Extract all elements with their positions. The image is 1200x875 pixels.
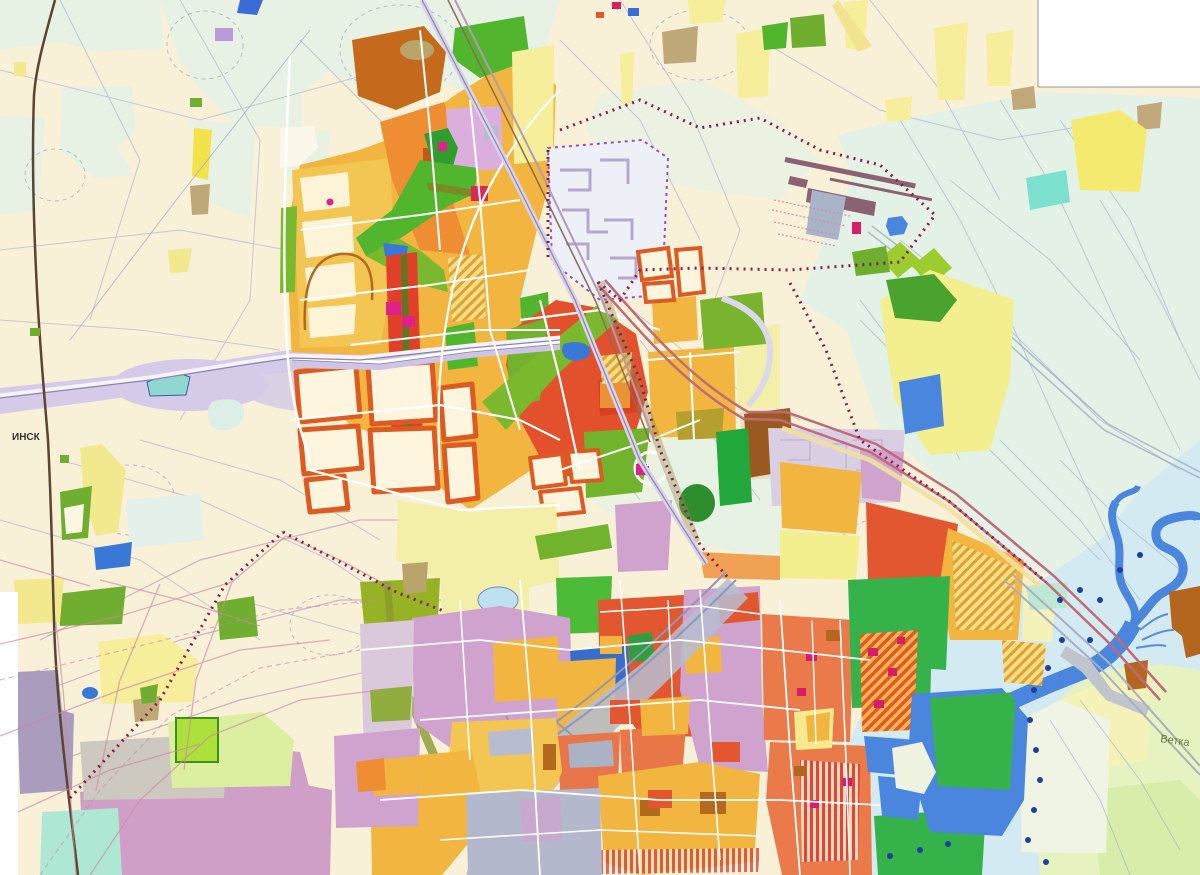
svg-text:ИНСК: ИНСК xyxy=(12,432,41,443)
